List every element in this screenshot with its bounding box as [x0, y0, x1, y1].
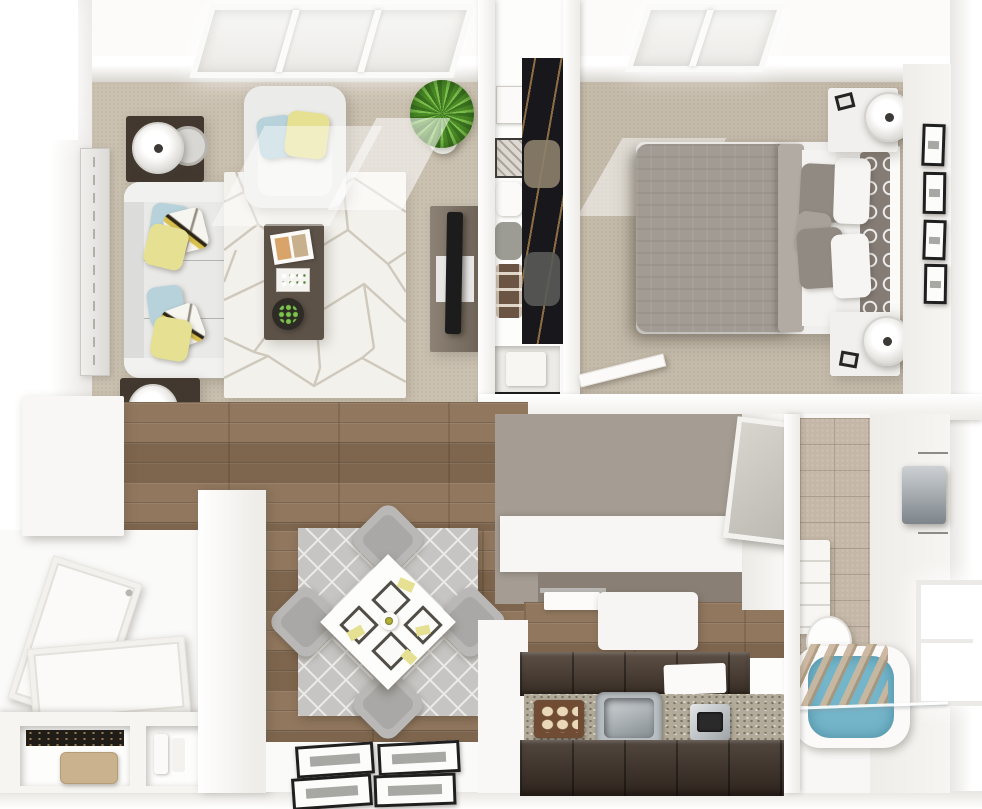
dish-towel [663, 663, 726, 695]
closet-left-wall [478, 0, 495, 416]
frame-sketch [927, 141, 939, 149]
magazine [270, 229, 314, 265]
left-window-top [0, 0, 78, 140]
window-mullion [921, 639, 973, 643]
bed-pillow-white [833, 157, 871, 224]
drum-lamp-top [132, 122, 184, 174]
nightstand-frame-deco [839, 351, 859, 369]
frame-sketch [928, 189, 940, 197]
succulent-bowl [272, 298, 304, 330]
garment-gray [524, 252, 560, 306]
bedroom-skylight [625, 4, 785, 72]
kitchen-lower-cabinets [520, 740, 784, 796]
floor-frame-2 [377, 740, 461, 776]
skylight-mullion [357, 10, 382, 72]
hand-towel [544, 592, 600, 610]
closet-pillow [495, 222, 522, 260]
closet-cubby [494, 346, 560, 394]
succulent [278, 304, 298, 324]
shoe-row [26, 730, 124, 746]
door-knob [125, 588, 134, 597]
living-skylight [189, 4, 474, 78]
magazine-photo [274, 236, 291, 260]
white-jar [172, 738, 185, 772]
sofa-pillow-yellow [149, 315, 194, 363]
frame-sketch [392, 751, 446, 764]
sofa-back [124, 182, 144, 378]
wood-floor-upper [118, 402, 528, 532]
white-jar [154, 734, 168, 774]
flower [385, 617, 393, 625]
towel-dispenser [902, 466, 946, 524]
floor-frame-3 [291, 773, 373, 809]
floor-frame-4 [373, 773, 456, 808]
duvet-texture [636, 144, 796, 332]
table-centerpiece [380, 612, 398, 630]
wall-art-mirror [80, 148, 110, 376]
sink-basin [604, 698, 654, 738]
nightstand-frame-deco [834, 92, 855, 111]
entry-partition-wall [198, 490, 266, 793]
frame-mat [838, 96, 852, 108]
cutting-board [534, 700, 584, 738]
wall-frame-3 [922, 220, 946, 261]
entry-wall-cabinet [22, 396, 124, 536]
dispenser-wire [918, 532, 948, 534]
frame-sketch [929, 280, 941, 288]
bathroom-window [916, 580, 982, 706]
flower-tray [276, 268, 310, 292]
closet-bag [496, 182, 522, 216]
floorplan-render [0, 0, 982, 809]
bread-slices [540, 705, 578, 733]
skylight-mullion [689, 10, 714, 66]
bed-pillow-white [830, 233, 871, 299]
frame-sketch [306, 785, 358, 799]
closet-hanging-clothes [522, 58, 564, 344]
tan-clutch [60, 752, 118, 784]
mirror-etching [93, 157, 95, 367]
closet-shelf-box [496, 86, 524, 124]
sofa-arm-top [124, 182, 238, 202]
frame-sketch [388, 784, 442, 796]
entry-shoe-cabinet [0, 712, 218, 792]
dishwasher [598, 592, 698, 650]
cubby-box [506, 352, 546, 386]
bed-duvet [636, 144, 796, 332]
dispenser-wire [918, 452, 948, 454]
toaster-slots [697, 712, 723, 732]
bottom-outer-wall [0, 791, 982, 809]
closet-right-wall [563, 0, 580, 416]
frame-sketch [928, 236, 940, 244]
bath-tray [792, 644, 888, 706]
skylight-mullion [275, 10, 300, 72]
bathroom-left-wall [784, 414, 800, 793]
frame-sketch [309, 753, 360, 767]
frame-mat [842, 354, 855, 365]
garment-tan [524, 140, 560, 188]
toaster [690, 704, 730, 740]
white-flowers [280, 272, 306, 288]
wall-frame-1 [921, 124, 945, 167]
cabinet-doors [520, 740, 784, 796]
wall-frame-2 [923, 172, 947, 214]
closet-basket [496, 264, 522, 318]
magazine-photo [291, 234, 308, 258]
wall-frame-4 [924, 264, 948, 304]
tv [445, 212, 463, 334]
